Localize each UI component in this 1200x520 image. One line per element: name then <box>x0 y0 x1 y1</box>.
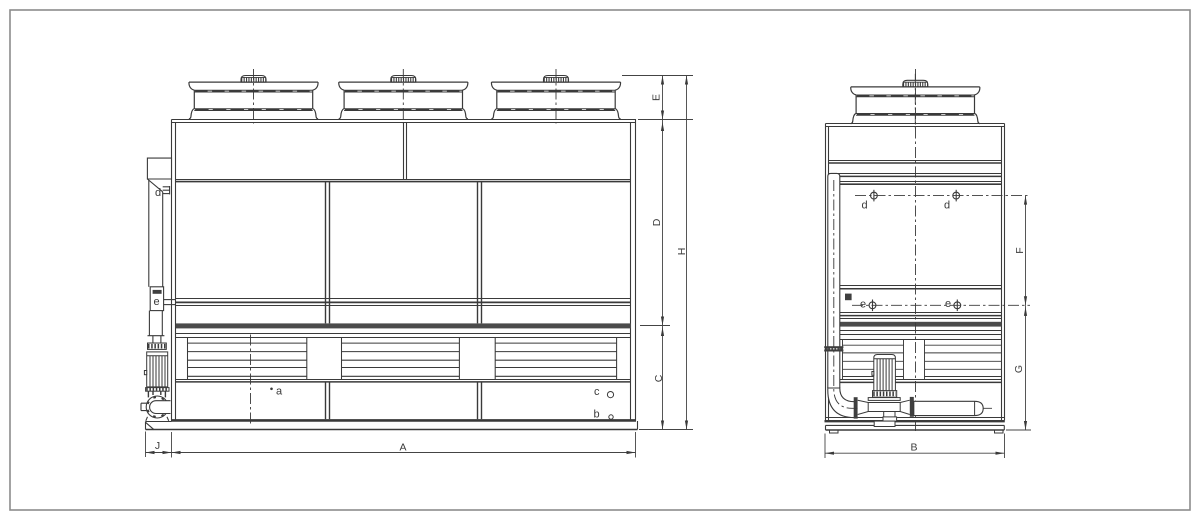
svg-text:A: A <box>399 442 406 454</box>
svg-text:E: E <box>651 94 663 101</box>
svg-text:J: J <box>155 440 160 452</box>
svg-text:H: H <box>676 248 688 256</box>
svg-text:b: b <box>594 409 600 421</box>
svg-text:a: a <box>276 386 283 398</box>
svg-text:c: c <box>594 386 600 398</box>
svg-text:F: F <box>1014 247 1026 253</box>
svg-text:B: B <box>910 442 917 454</box>
svg-text:G: G <box>1013 365 1025 373</box>
svg-text:d: d <box>944 200 950 212</box>
svg-text:C: C <box>653 374 665 382</box>
svg-text:d: d <box>155 187 161 199</box>
svg-text:e: e <box>860 299 866 311</box>
svg-text:e: e <box>154 296 160 308</box>
svg-text:e: e <box>945 298 951 310</box>
svg-text:d: d <box>862 200 868 212</box>
svg-text:D: D <box>651 218 663 226</box>
